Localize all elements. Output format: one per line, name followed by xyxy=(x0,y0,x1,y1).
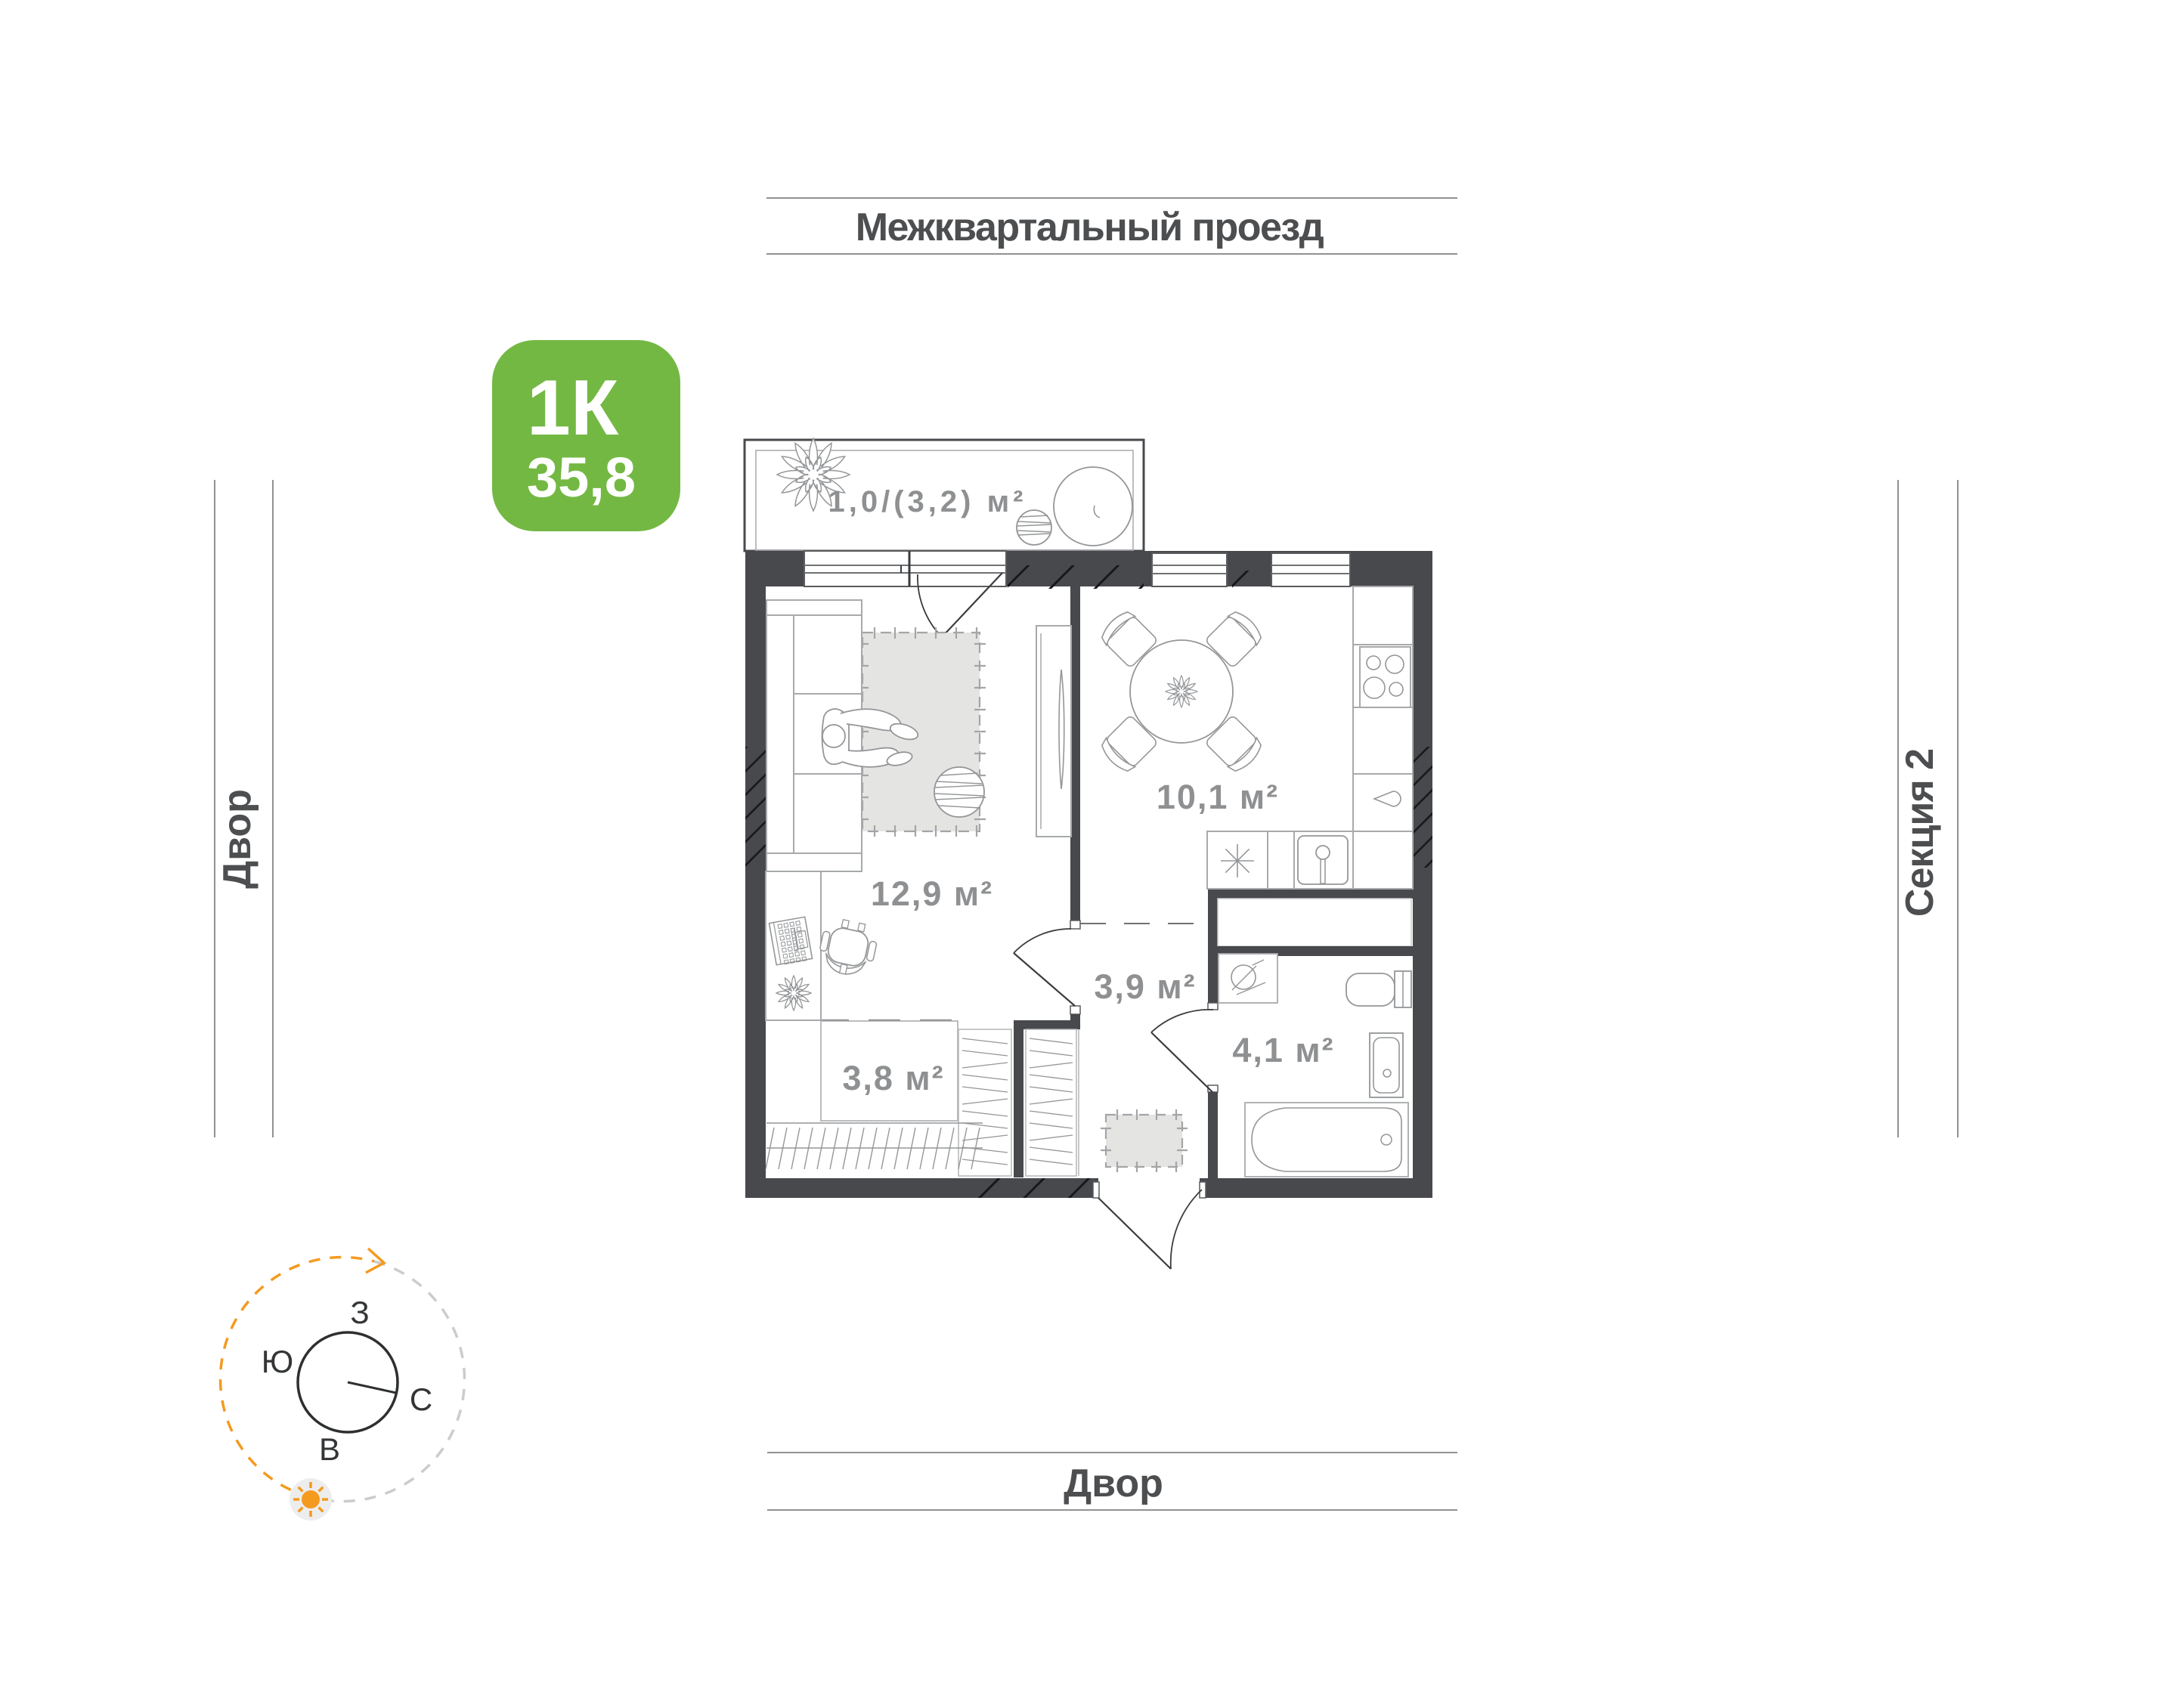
svg-text:12,9 м²: 12,9 м² xyxy=(871,874,993,913)
svg-text:3,9 м²: 3,9 м² xyxy=(1094,967,1196,1006)
svg-text:В: В xyxy=(319,1431,340,1467)
svg-text:35,8: 35,8 xyxy=(527,446,636,509)
svg-text:4,1 м²: 4,1 м² xyxy=(1232,1031,1334,1069)
svg-text:Межквартальный проезд: Межквартальный проезд xyxy=(856,206,1324,249)
svg-text:Секция 2: Секция 2 xyxy=(1898,749,1942,917)
svg-text:З: З xyxy=(350,1295,369,1330)
svg-text:1К: 1К xyxy=(527,364,619,452)
svg-text:Ю: Ю xyxy=(262,1344,293,1379)
svg-text:1,0/(3,2) м²: 1,0/(3,2) м² xyxy=(828,485,1027,518)
svg-text:10,1 м²: 10,1 м² xyxy=(1157,778,1279,816)
svg-text:С: С xyxy=(410,1382,432,1417)
svg-text:3,8 м²: 3,8 м² xyxy=(842,1059,944,1097)
svg-text:Двор: Двор xyxy=(1064,1462,1163,1505)
svg-text:Двор: Двор xyxy=(215,789,259,889)
